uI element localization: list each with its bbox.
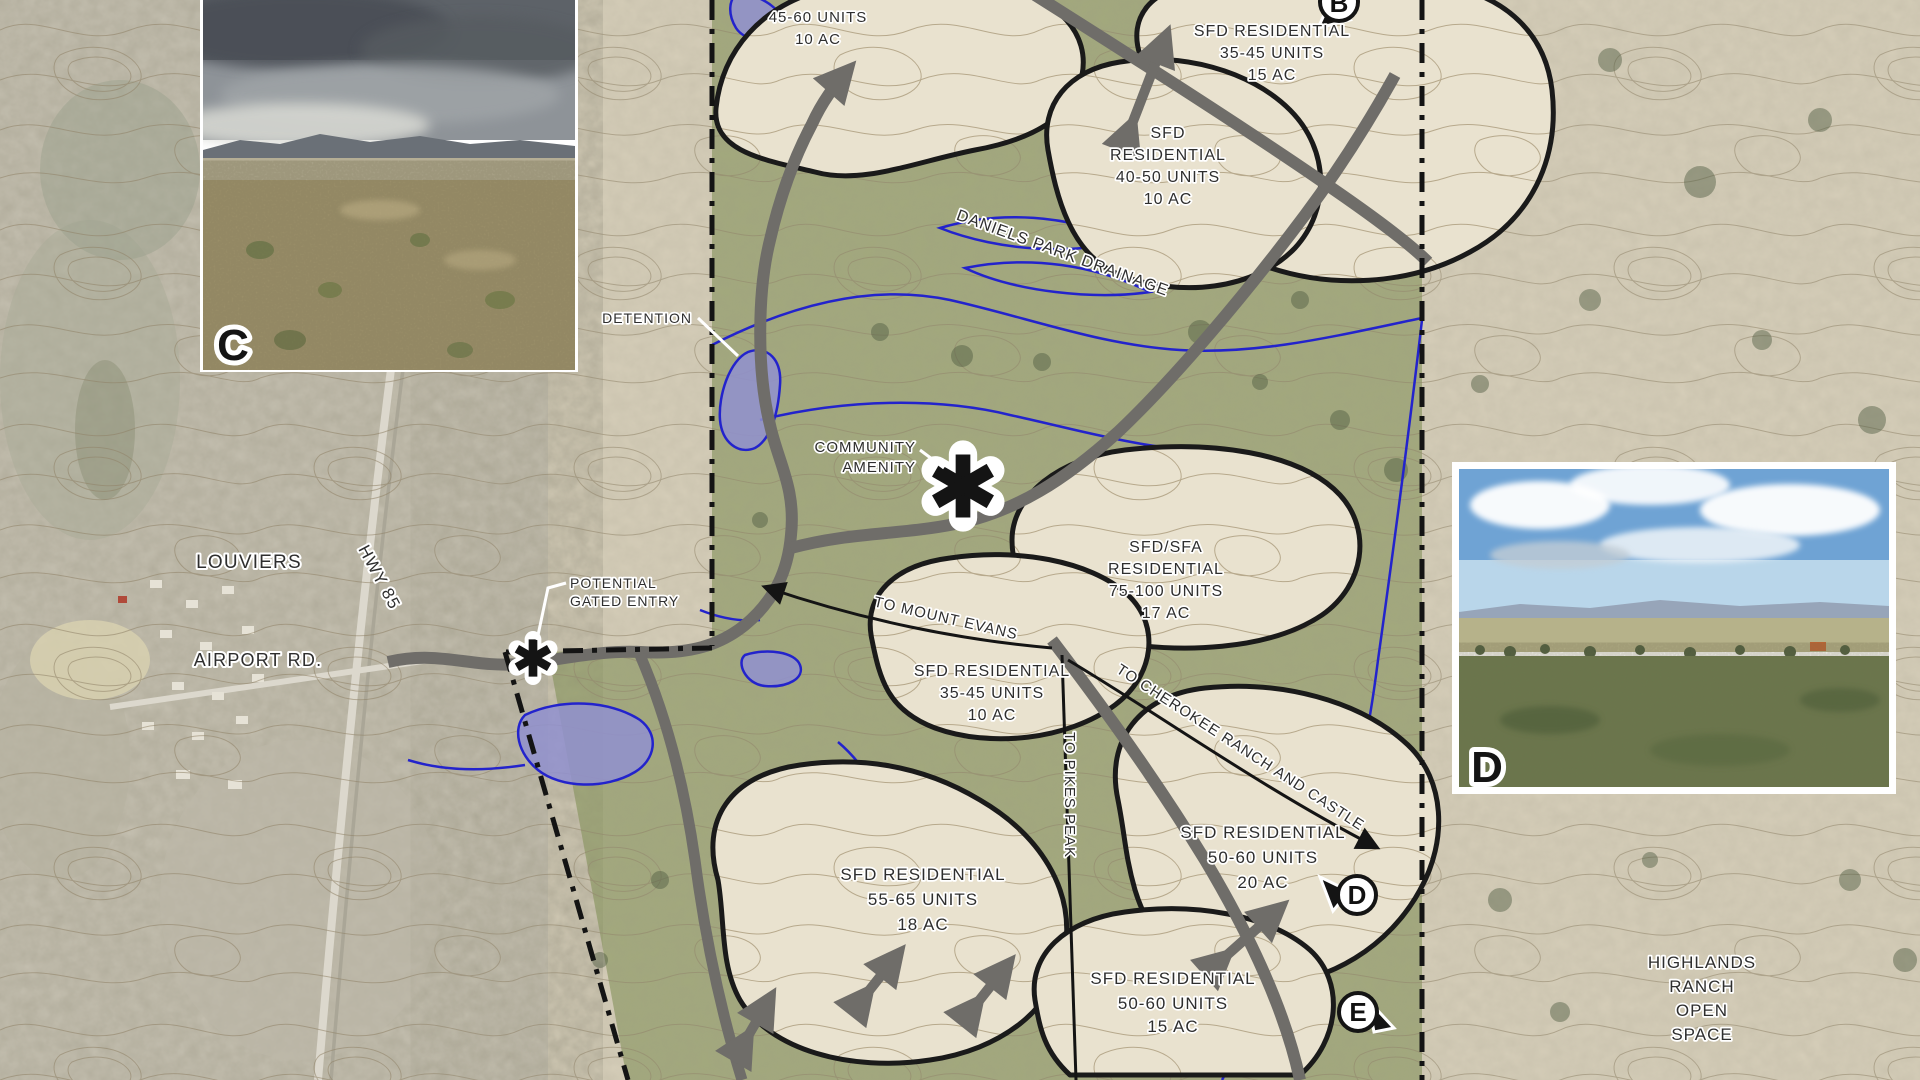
highlands-line: OPEN [1676,1001,1728,1020]
parcel-label: SFD [1151,125,1186,142]
pond [742,652,801,687]
parcel-label: 75-100 UNITS [1109,583,1223,600]
community-amenity-symbol [936,455,991,518]
parcel-label: 20 AC [1237,873,1288,892]
gated-entry-label-2: GATED ENTRY [570,593,679,609]
parcel-label: 15 AC [1147,1017,1198,1036]
parcel-label: SFD RESIDENTIAL [914,663,1070,680]
gated-entry-label-1: POTENTIAL [570,575,657,591]
parcel-label: RESIDENTIAL [1108,561,1224,578]
parcel-label: SFD/SFA [1129,539,1203,556]
gated-entry-symbol [517,639,549,676]
parcel-label: RESIDENTIAL [1110,147,1226,164]
parcel-label: 10 AC [968,707,1017,724]
highlands-line: HIGHLANDS [1648,953,1756,972]
photo-inset-c: C [150,0,600,372]
highlands-line: SPACE [1671,1025,1732,1044]
parcel-label: SFD RESIDENTIAL [1180,823,1345,842]
parcel-label: 35-45 UNITS [1220,45,1324,62]
distant-vehicle [1810,642,1826,651]
parcel-label: 40-50 UNITS [1116,169,1220,186]
photo-inset-d: D [1452,462,1896,794]
photo-c-label: C [217,321,249,370]
parcel-label: 55-65 UNITS [868,890,978,909]
parcel-label: 50-60 UNITS [1118,994,1228,1013]
photo-d-label: D [1471,743,1503,792]
map-canvas: C D [0,0,1920,1080]
community-amenity-label-1: COMMUNITY [815,439,917,456]
marker-e-letter: E [1349,997,1366,1027]
airport-rd-label: AIRPORT RD. [194,650,323,670]
parcel-label: 15 AC [1248,67,1297,84]
parcel-label: SFD RESIDENTIAL [1194,23,1350,40]
community-amenity-label-2: AMENITY [842,459,916,476]
parcel-label: 35-45 UNITS [940,685,1044,702]
parcel-label: 17 AC [1142,605,1191,622]
parcel-label: 45-60 UNITS [769,9,868,26]
parcel-label: 18 AC [897,915,948,934]
site-plan-map: C D [0,0,1920,1080]
parcel-label: 10 AC [795,31,841,48]
parcel-label: SFD RESIDENTIAL [1090,969,1255,988]
parcel-label: 50-60 UNITS [1208,848,1318,867]
highlands-line: RANCH [1669,977,1734,996]
parcel-label: SFD RESIDENTIAL [840,865,1005,884]
louviers-label: LOUVIERS [196,552,302,573]
marker-b-letter: B [1330,0,1349,18]
parcel-label: 10 AC [1144,191,1193,208]
marker-d-letter: D [1348,880,1367,910]
detention-label: DETENTION [602,310,692,326]
to-pikes-peak-label: TO PIKES PEAK [1061,732,1078,858]
